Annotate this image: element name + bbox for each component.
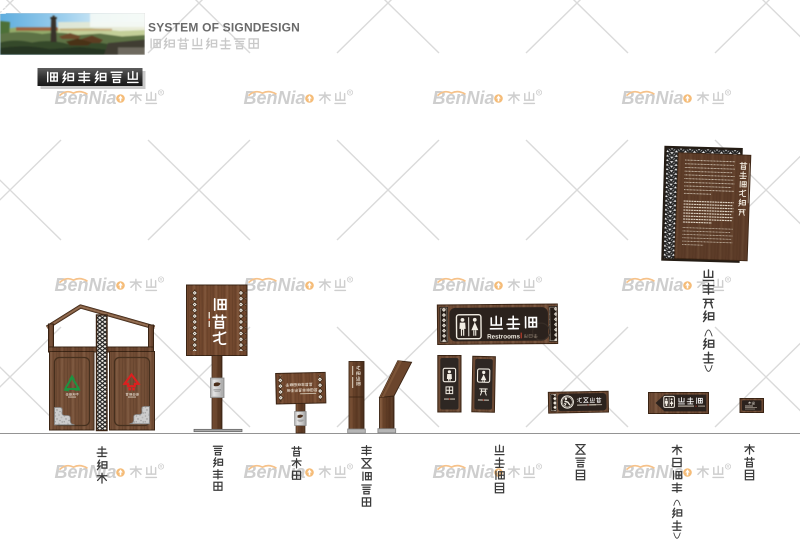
svg-text:SYSTEM OF SIGNDESIGN: SYSTEM OF SIGNDESIGN xyxy=(148,21,300,35)
svg-text:Restrooms: Restrooms xyxy=(487,333,520,340)
